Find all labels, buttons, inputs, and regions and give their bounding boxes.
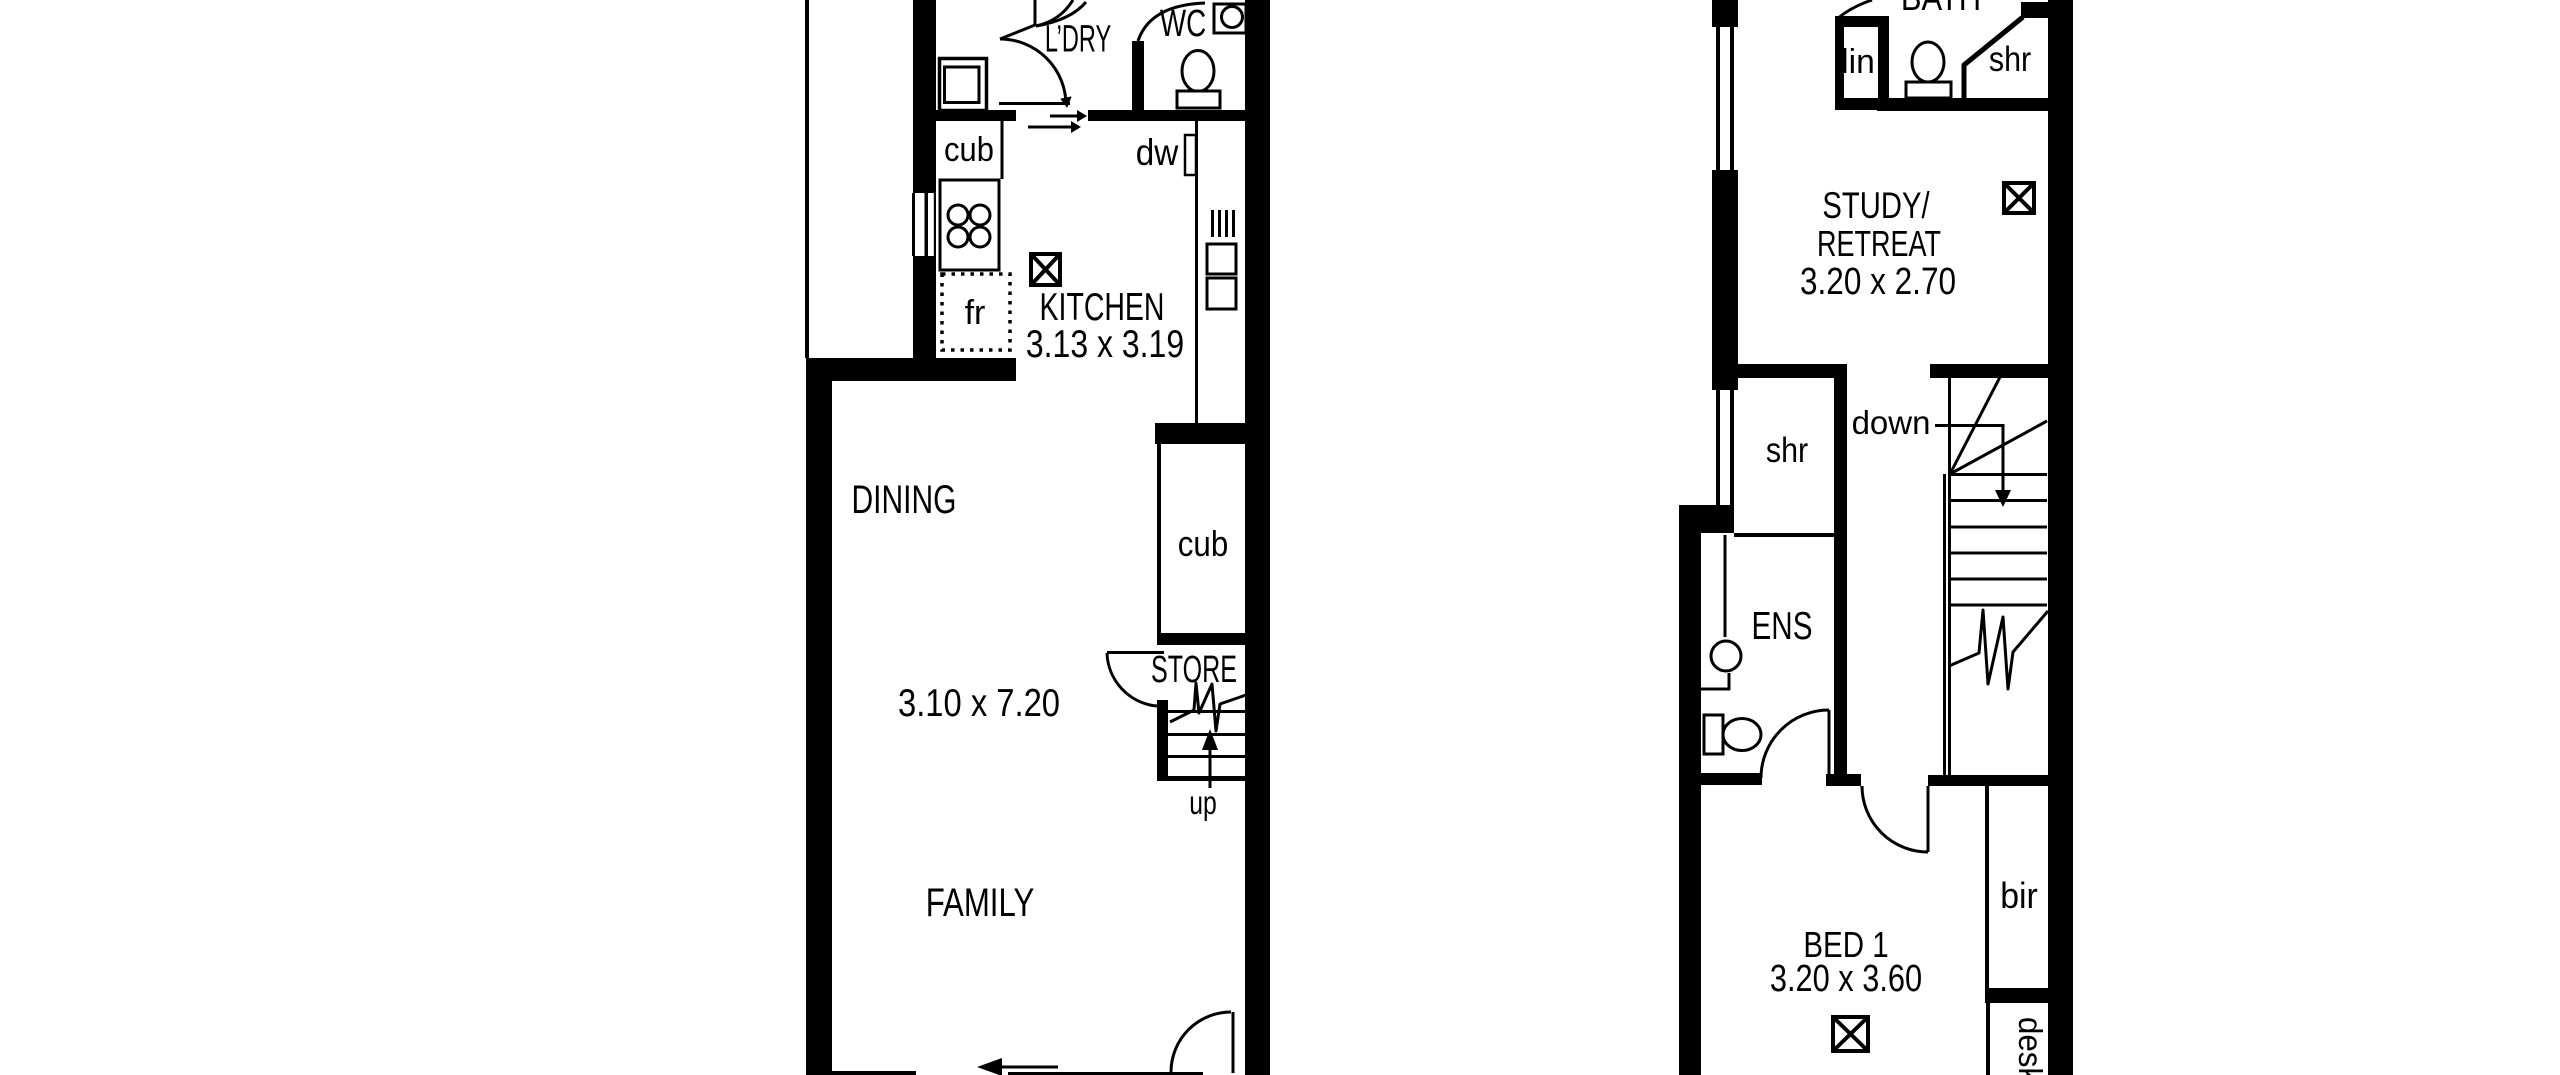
svg-text:shr: shr (1766, 430, 1808, 469)
svg-text:cub: cub (944, 131, 994, 169)
svg-text:dw: dw (1136, 132, 1179, 173)
svg-text:WC: WC (1160, 3, 1206, 45)
svg-text:bir: bir (2000, 876, 2038, 916)
svg-text:down: down (1852, 404, 1931, 441)
svg-text:L’DRY: L’DRY (1045, 17, 1111, 60)
svg-text:3.20 x 3.60: 3.20 x 3.60 (1770, 958, 1922, 1000)
svg-text:RETREAT: RETREAT (1817, 223, 1941, 264)
svg-text:BATH: BATH (1901, 0, 1981, 19)
svg-text:3.20 x 2.70: 3.20 x 2.70 (1800, 260, 1956, 302)
svg-text:FAMILY: FAMILY (926, 880, 1035, 925)
svg-text:3.13 x 3.19: 3.13 x 3.19 (1026, 322, 1184, 366)
svg-text:3.10 x 7.20: 3.10 x 7.20 (898, 680, 1060, 724)
svg-text:STUDY/: STUDY/ (1822, 186, 1930, 227)
svg-text:STORE: STORE (1151, 648, 1237, 690)
svg-text:ENS: ENS (1752, 605, 1813, 648)
svg-text:up: up (1189, 786, 1217, 822)
svg-text:fr: fr (965, 294, 986, 332)
svg-text:desk: desk (2012, 1017, 2049, 1075)
svg-text:DINING: DINING (852, 478, 957, 522)
svg-text:shr: shr (1989, 39, 2031, 78)
svg-text:cub: cub (1178, 524, 1228, 565)
svg-text:lin: lin (1841, 43, 1875, 81)
